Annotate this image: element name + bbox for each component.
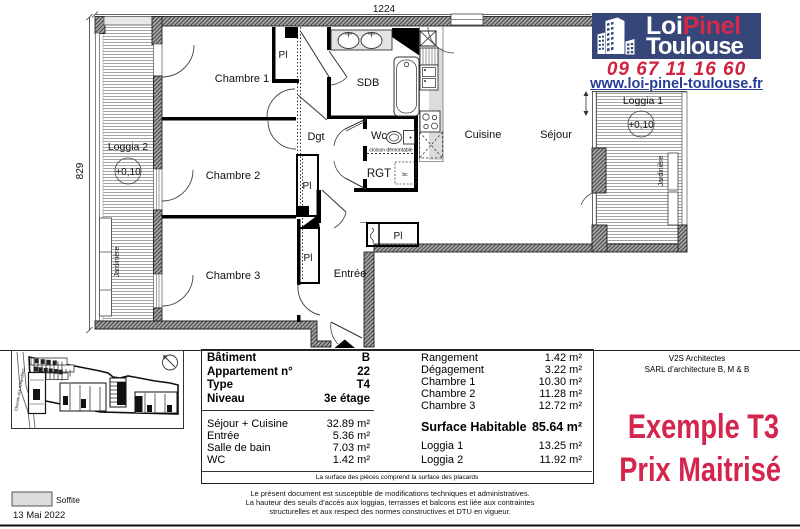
svg-text:Soffite: Soffite [56,495,80,505]
svg-text:Entrée: Entrée [334,268,366,280]
svg-text:Chambre 2: Chambre 2 [206,170,260,182]
svg-text:1224: 1224 [373,4,396,15]
svg-text:Loggia 2: Loggia 2 [108,141,148,153]
svg-text:RGT: RGT [367,168,391,180]
svg-text:Chambre 1: Chambre 1 [215,73,269,85]
svg-text:SDB: SDB [357,77,380,89]
svg-text:Pl: Pl [394,231,403,242]
svg-text:Wc: Wc [371,130,387,142]
svg-text:Pl: Pl [279,50,288,61]
svg-text:829: 829 [75,162,86,179]
svg-text:Jardinière: Jardinière [658,156,665,187]
svg-text:cloison démontable: cloison démontable [369,148,412,154]
svg-text:Chambre 3: Chambre 3 [206,270,260,282]
svg-text:Cuisine: Cuisine [465,129,502,141]
svg-text:Pl: Pl [303,181,312,192]
svg-text:Dgt: Dgt [307,131,324,143]
svg-text:bc: bc [402,172,408,178]
svg-text:13 Mai 2022: 13 Mai 2022 [13,510,65,521]
svg-text:Loggia 1: Loggia 1 [623,95,663,107]
svg-text:+0,10: +0,10 [628,120,654,131]
svg-text:+0,10: +0,10 [115,167,141,178]
svg-text:Séjour: Séjour [540,129,572,141]
svg-text:Pl: Pl [304,253,313,264]
svg-text:Jardinière: Jardinière [114,247,121,278]
